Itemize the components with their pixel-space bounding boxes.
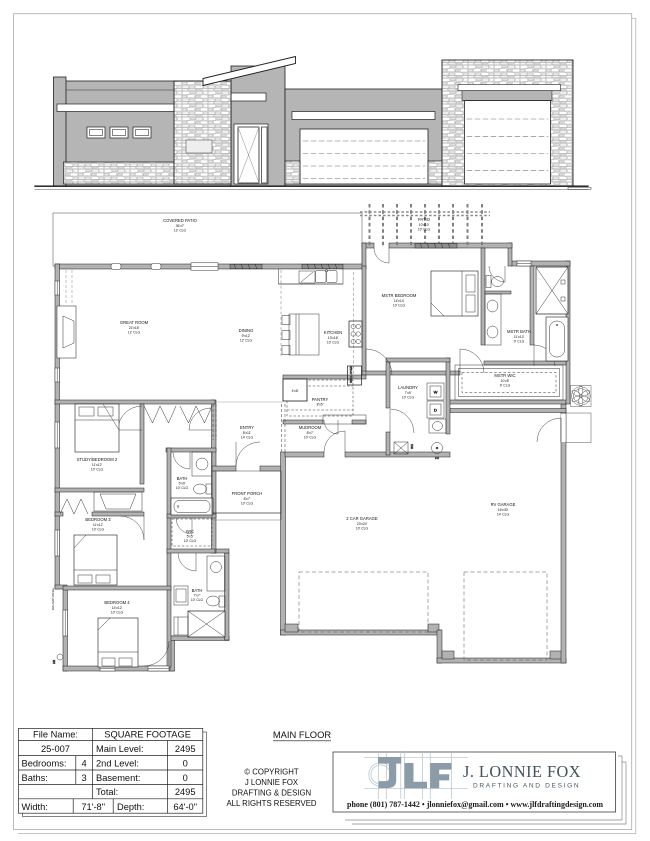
svg-text:4: 4 (82, 758, 87, 768)
svg-text:Bedrooms:: Bedrooms: (22, 758, 67, 768)
svg-text:WIC5'x5'10' CLG: WIC5'x5'10' CLG (184, 529, 197, 543)
svg-text:0: 0 (183, 773, 188, 783)
svg-text:MSTR BATH11'x13'9' CLG: MSTR BATH11'x13'9' CLG (507, 329, 531, 344)
svg-text:25-007: 25-007 (41, 744, 70, 754)
svg-text:0: 0 (183, 758, 188, 768)
svg-text:ALL RIGHTS RESERVED: ALL RIGHTS RESERVED (226, 799, 316, 808)
svg-text:BATH5'x9'10' CLG: BATH5'x9'10' CLG (176, 476, 189, 490)
svg-text:2 CAR GARAGE23'x24'10' CLG: 2 CAR GARAGE23'x24'10' CLG (346, 516, 378, 531)
svg-text:STUDY/BEDROOM 211'x12'10' CLG: STUDY/BEDROOM 211'x12'10' CLG (77, 457, 118, 472)
svg-text:3: 3 (82, 773, 87, 783)
svg-text:DINING9'x12'12' CLG: DINING9'x12'12' CLG (239, 328, 254, 343)
svg-text:2nd Level:: 2nd Level: (96, 758, 139, 768)
svg-text:200 AMP PANEL: 200 AMP PANEL (51, 587, 55, 610)
svg-text:WH: WH (410, 444, 414, 449)
svg-text:Total:: Total: (96, 787, 118, 797)
svg-text:D: D (434, 408, 437, 413)
svg-text:HB: HB (52, 660, 56, 664)
svg-text:PANTRY8'x5': PANTRY8'x5' (312, 397, 329, 407)
svg-text:BEDROOM 414'x12'10' CLG: BEDROOM 414'x12'10' CLG (104, 600, 130, 615)
svg-text:Width:: Width: (22, 802, 48, 812)
svg-text:SQUARE FOOTAGE: SQUARE FOOTAGE (104, 730, 191, 740)
svg-text:GREAT ROOM21'x18'12' CLG: GREAT ROOM21'x18'12' CLG (120, 320, 149, 335)
svg-text:© COPYRIGHT: © COPYRIGHT (244, 768, 298, 777)
svg-text:File Name:: File Name: (33, 730, 78, 740)
svg-text:MSTR BEDROOM14'x14'10' CLG: MSTR BEDROOM14'x14'10' CLG (382, 293, 417, 308)
svg-text:W: W (434, 390, 438, 395)
svg-text:phone (801) 787-1442 • jlonnie: phone (801) 787-1442 • jlonniefox@gmail.… (347, 800, 603, 809)
svg-text:FRONT PORCH8'x7'10' CLG: FRONT PORCH8'x7'10' CLG (232, 491, 263, 506)
svg-text:DRAFTING AND DESIGN: DRAFTING AND DESIGN (473, 783, 581, 790)
svg-text:MAIN FLOOR: MAIN FLOOR (273, 729, 332, 740)
svg-text:PATIO10'x10'10' CLG: PATIO10'x10'10' CLG (418, 217, 431, 232)
svg-text:J LONNIE FOX: J LONNIE FOX (245, 778, 299, 787)
svg-text:BEDROOM 311'x12'10' CLG: BEDROOM 311'x12'10' CLG (85, 517, 111, 532)
svg-text:2495: 2495 (175, 787, 196, 797)
svg-text:J. LONNIE FOX: J. LONNIE FOX (463, 762, 581, 781)
svg-text:LAUNDRY7'x9'10' CLG: LAUNDRY7'x9'10' CLG (398, 385, 418, 400)
svg-text:MSTR WIC10'x5'9' CLG: MSTR WIC10'x5'9' CLG (494, 373, 515, 388)
svg-text:WALL OVEN: WALL OVEN (349, 366, 353, 383)
svg-text:Main Level:: Main Level: (96, 744, 144, 754)
svg-text:64'-0": 64'-0" (173, 802, 197, 812)
svg-text:RV GARAGE16'x30'14' CLG: RV GARAGE16'x30'14' CLG (491, 502, 516, 517)
svg-text:Depth:: Depth: (117, 802, 144, 812)
svg-text:71'-8": 71'-8" (81, 802, 105, 812)
svg-text:DRAFTING & DESIGN: DRAFTING & DESIGN (232, 788, 311, 797)
svg-text:4'x8': 4'x8' (292, 389, 299, 393)
svg-text:Basement:: Basement: (96, 773, 140, 783)
svg-text:BATH7'x7'10' CLG: BATH7'x7'10' CLG (191, 588, 204, 602)
svg-text:Baths:: Baths: (22, 773, 48, 783)
svg-text:KITCHEN13'x16'10' CLG: KITCHEN13'x16'10' CLG (324, 330, 342, 345)
svg-text:ENTRY8'x11'14' CLG: ENTRY8'x11'14' CLG (240, 425, 254, 440)
svg-text:COVERED PATIO36'x7'12' CLG: COVERED PATIO36'x7'12' CLG (163, 218, 198, 233)
svg-text:2495: 2495 (175, 744, 196, 754)
svg-text:MUDROOM8'x7'10' CLG: MUDROOM8'x7'10' CLG (299, 425, 322, 440)
